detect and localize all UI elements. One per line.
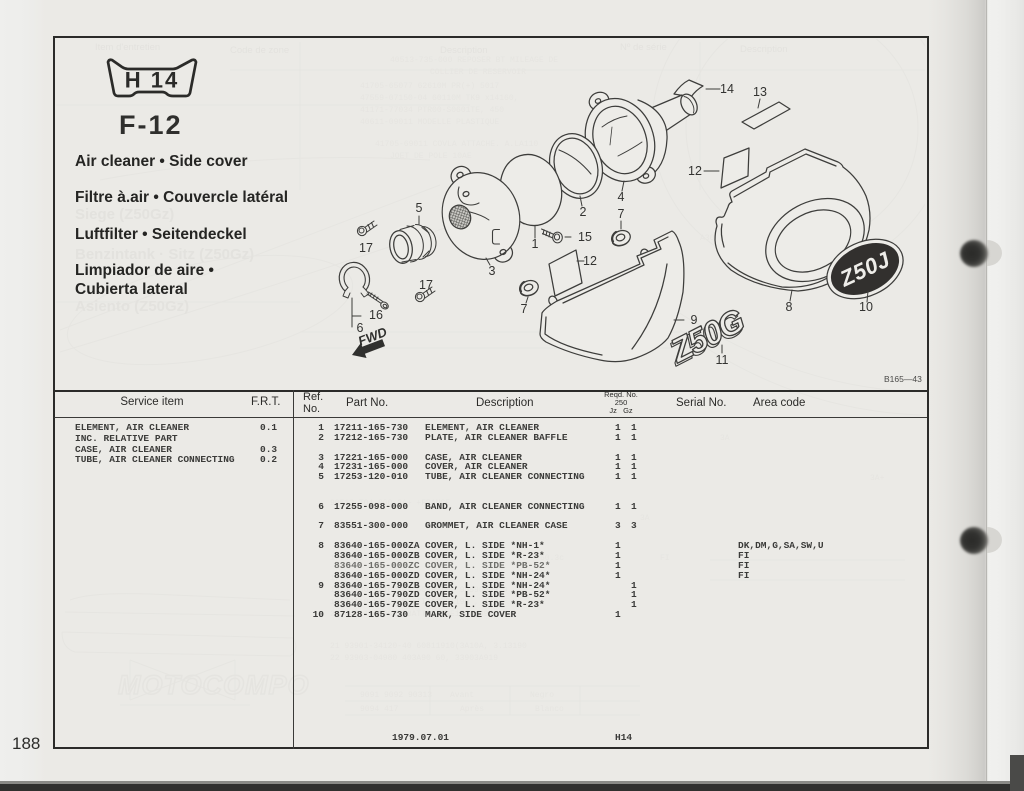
svg-text:7: 7 — [618, 207, 625, 221]
svg-text:H 14: H 14 — [125, 68, 179, 93]
svg-text:8: 8 — [786, 300, 793, 314]
svg-text:17: 17 — [419, 278, 433, 292]
svg-text:15: 15 — [578, 230, 592, 244]
svg-text:2: 2 — [580, 205, 587, 219]
svg-text:13: 13 — [753, 85, 767, 99]
svg-text:3: 3 — [489, 264, 496, 278]
svg-text:1: 1 — [532, 237, 539, 251]
svg-text:10: 10 — [859, 300, 873, 314]
svg-text:9: 9 — [691, 313, 698, 327]
svg-text:14: 14 — [720, 82, 734, 96]
svg-text:B165—43: B165—43 — [884, 374, 922, 384]
svg-text:4: 4 — [618, 190, 625, 204]
svg-text:17: 17 — [359, 241, 373, 255]
svg-text:12: 12 — [583, 254, 597, 268]
svg-text:7: 7 — [521, 302, 528, 316]
svg-text:12: 12 — [688, 164, 702, 178]
svg-text:11: 11 — [716, 353, 729, 367]
svg-text:5: 5 — [416, 201, 423, 215]
svg-text:16: 16 — [369, 308, 383, 322]
